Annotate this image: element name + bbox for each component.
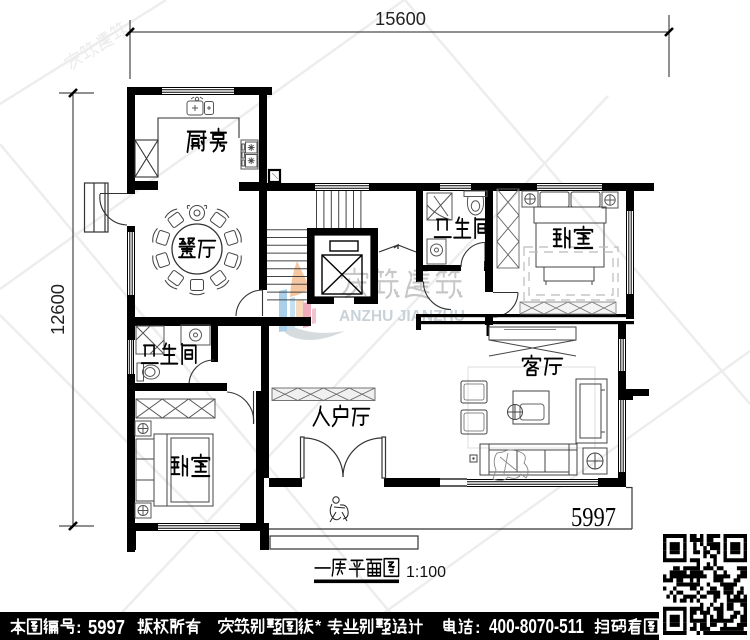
svg-text:*: * <box>315 618 322 635</box>
svg-text:400-8070-511: 400-8070-511 <box>489 616 584 638</box>
svg-text::: : <box>475 618 481 637</box>
svg-text:5997: 5997 <box>88 617 125 639</box>
svg-text:5997: 5997 <box>571 502 616 532</box>
svg-text:15600: 15600 <box>375 9 426 29</box>
svg-text:12600: 12600 <box>48 284 68 335</box>
svg-text::: : <box>76 618 82 637</box>
svg-text:1:100: 1:100 <box>406 564 446 581</box>
